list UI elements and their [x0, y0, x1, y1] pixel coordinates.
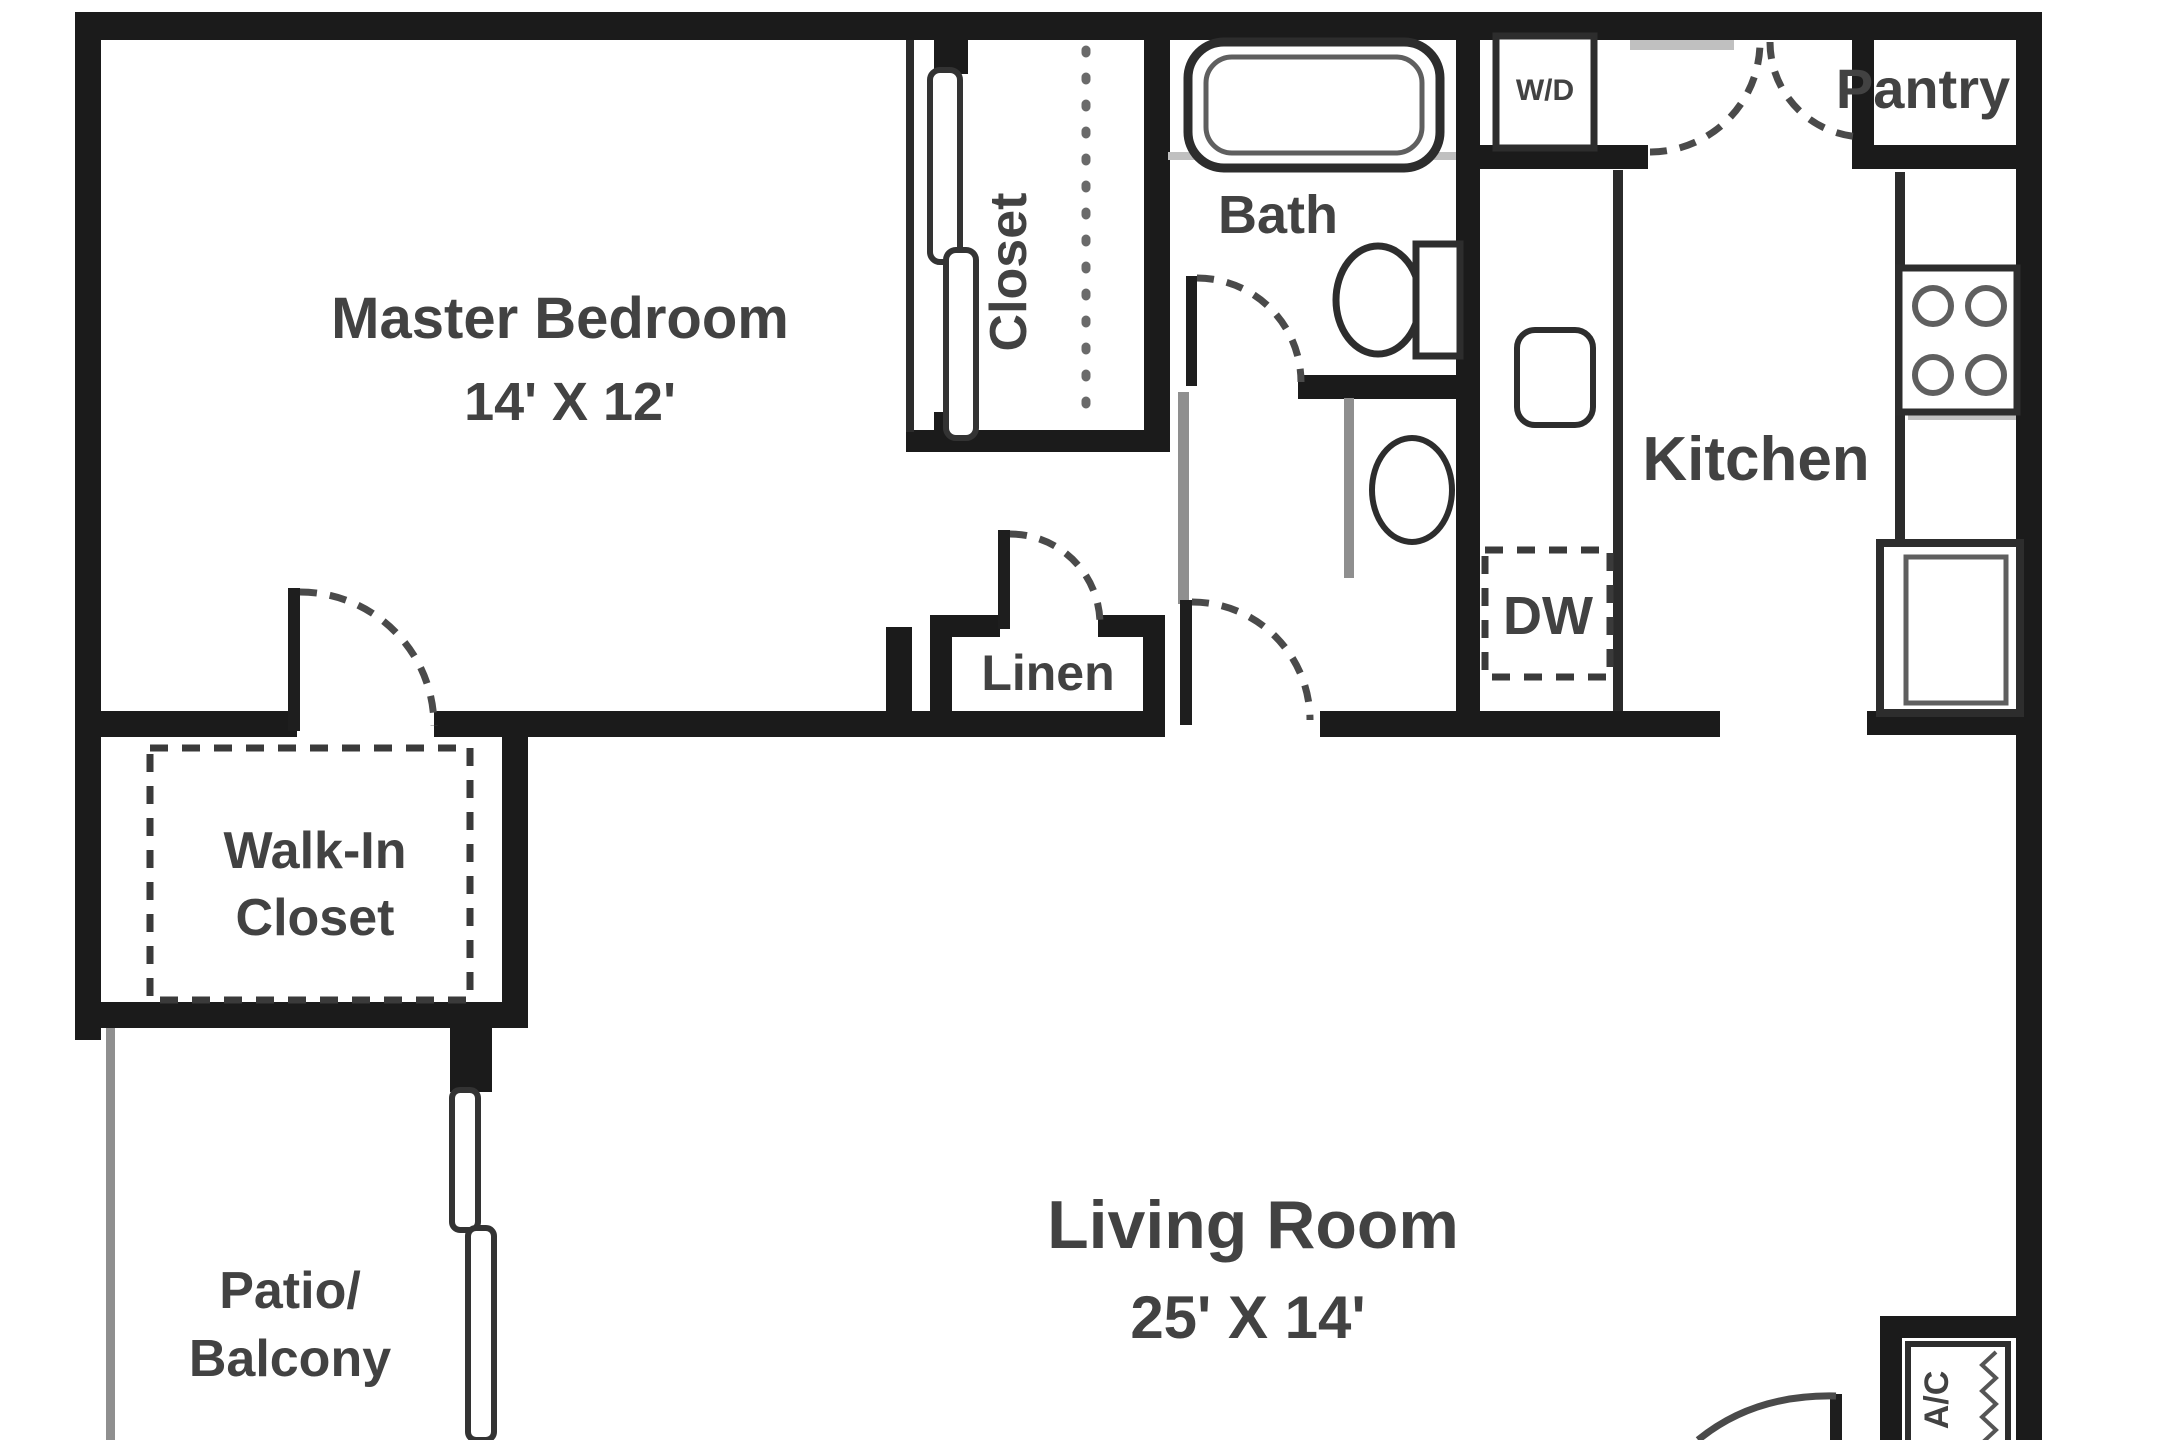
kitchen-left-counter-edge	[1613, 170, 1623, 711]
vanity-sink	[1372, 438, 1452, 542]
hall-door	[1180, 600, 1310, 725]
walkin-door-arc	[300, 592, 434, 726]
patio-left-rail	[106, 1028, 115, 1440]
master-bedroom-dimensions: 14' X 12'	[464, 372, 676, 432]
wall-bedroom-bottom-left	[75, 711, 297, 737]
room-closet: Closet	[930, 26, 1086, 452]
pantry-label: Pantry	[1836, 57, 2010, 120]
patio-slider-panel-2	[468, 1228, 494, 1440]
room-walk-in-closet: Walk-In Closet	[150, 588, 470, 1000]
patio-slider-panel-1	[452, 1090, 478, 1230]
wall-walkin-bottom	[75, 1002, 526, 1028]
hall-door-leaf	[1180, 600, 1192, 725]
wall-hall-bottom-right	[1320, 711, 1720, 737]
entry-door-arc	[1698, 1396, 1836, 1440]
room-bath: Bath	[1186, 42, 1460, 386]
toilet-tank	[1416, 244, 1460, 356]
room-patio: Patio/ Balcony	[189, 1090, 494, 1440]
master-bedroom-label: Master Bedroom	[331, 286, 789, 351]
wall-pantry-bottom	[1852, 145, 2042, 169]
room-living: Living Room 25' X 14'	[1047, 1187, 1459, 1351]
wall-linen-left	[930, 615, 952, 735]
linen-door-arc	[1010, 534, 1100, 624]
vanity-counter-edge	[1344, 398, 1354, 578]
wall-ac-closet-left	[1880, 1316, 1902, 1440]
patio-label-line1: Patio/	[219, 1262, 361, 1320]
closet-label: Closet	[980, 193, 1038, 352]
sliding-door-panel-2	[946, 250, 976, 438]
room-master-bedroom: Master Bedroom 14' X 12'	[331, 286, 789, 432]
floor-plan-drawing: Master Bedroom 14' X 12' Closet Bath W/D…	[0, 0, 2160, 1440]
floor-plan-page: Master Bedroom 14' X 12' Closet Bath W/D…	[0, 0, 2160, 1440]
hall-door-arc	[1192, 602, 1310, 720]
wall-left	[75, 12, 101, 1040]
walkin-door-leaf	[288, 588, 300, 731]
washer-dryer-label: W/D	[1516, 74, 1574, 107]
wall-closet-bath-divider	[1144, 38, 1170, 452]
wall-bath-bottom	[1298, 375, 1472, 399]
kitchen-label: Kitchen	[1642, 425, 1869, 494]
kitchen-sink	[1517, 330, 1593, 425]
room-linen: Linen	[981, 530, 1114, 701]
bath-label: Bath	[1218, 185, 1338, 245]
wall-linen-right	[1143, 615, 1165, 735]
wall-top	[75, 12, 2042, 40]
sliding-door-panel-1	[930, 70, 960, 262]
vanity-divider-wall	[1178, 392, 1189, 604]
wd-closet-door-arc	[1650, 42, 1760, 152]
laundry-and-pantry: W/D Pantry	[1496, 36, 2010, 152]
bath-door-arc	[1197, 278, 1301, 382]
entry-and-ac-closet: A/C	[1698, 1344, 2008, 1440]
slider-top-stub	[934, 26, 968, 74]
wall-bedroom-hall-stub	[886, 627, 912, 737]
living-room-label: Living Room	[1047, 1187, 1459, 1263]
vanity-area	[1372, 438, 1452, 542]
entry-door-leaf	[1830, 1394, 1842, 1440]
closet-slider-jamb	[906, 40, 914, 432]
linen-label: Linen	[981, 645, 1114, 701]
wall-bedroom-bottom-mid	[434, 711, 1165, 737]
walkin-label-line1: Walk-In	[224, 822, 407, 880]
linen-door-leaf	[998, 530, 1010, 629]
refrigerator	[1880, 543, 2020, 713]
dishwasher-label: DW	[1503, 586, 1593, 646]
wall-patio-slider-stub	[450, 1028, 492, 1092]
living-room-dimensions: 25' X 14'	[1130, 1284, 1365, 1351]
bathtub	[1188, 42, 1440, 168]
wd-door-header	[1630, 40, 1734, 50]
wall-walkin-right	[502, 711, 528, 1028]
room-kitchen: DW Kitchen	[1485, 268, 2020, 713]
patio-label-line2: Balcony	[189, 1330, 391, 1388]
bath-door-leaf	[1186, 276, 1197, 386]
toilet-bowl	[1336, 246, 1420, 354]
ac-label: A/C	[1918, 1371, 1956, 1430]
walkin-label-line2: Closet	[236, 889, 395, 947]
